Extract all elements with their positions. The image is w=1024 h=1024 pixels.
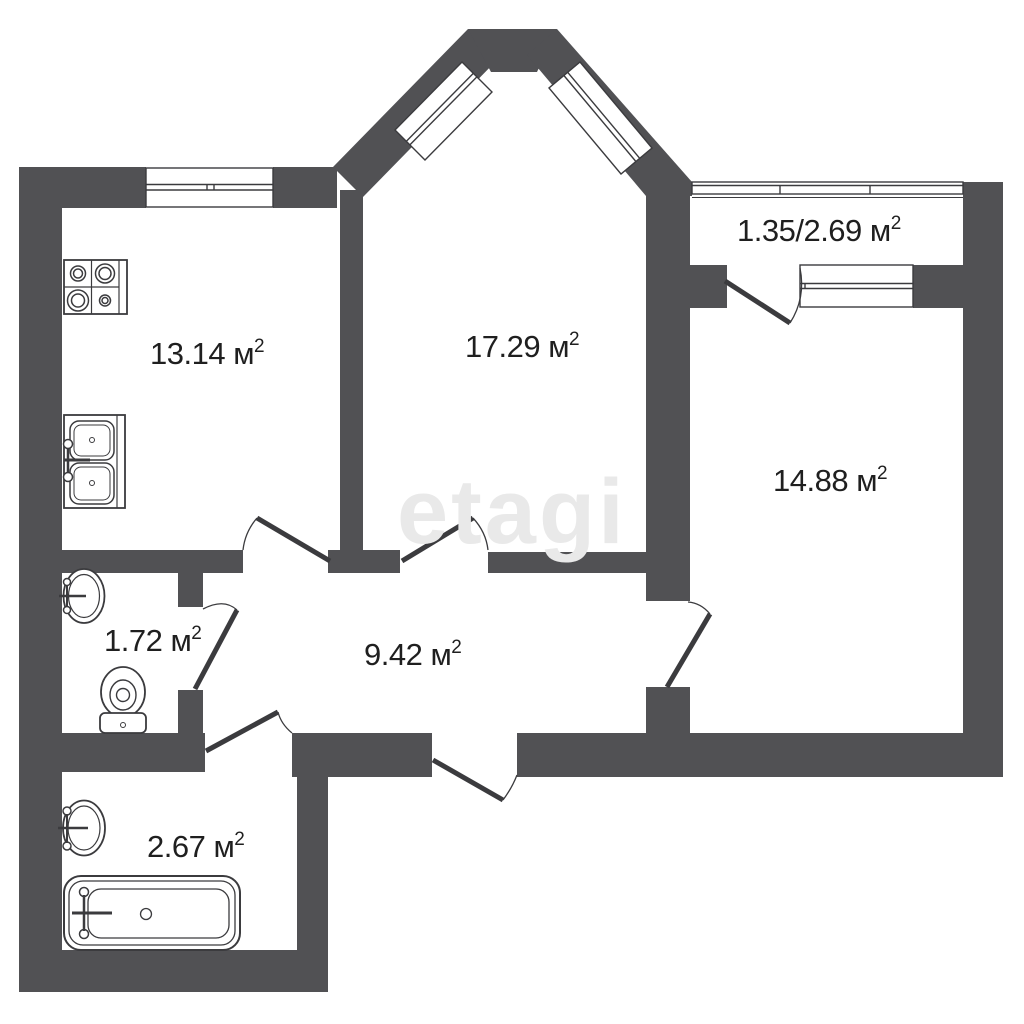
balcony-partition-window-icon xyxy=(800,265,913,307)
wall-bottom-main xyxy=(517,733,1003,777)
floor-plan-canvas: etagi 13.14 м2 17.29 м2 1.35/2.69 м2 14.… xyxy=(0,0,1024,1024)
wall-top-kitchen-left xyxy=(19,167,146,208)
label-wc-area: 1.72 м2 xyxy=(104,623,201,658)
bedroom-door xyxy=(667,602,710,687)
wall-balcony-partition-left xyxy=(690,265,727,308)
kitchen-door xyxy=(243,518,330,561)
label-bathroom-area: 2.67 м2 xyxy=(147,829,244,864)
wall-divider-foot xyxy=(328,550,400,573)
bathroom-door xyxy=(206,712,292,751)
wall-wc-right-upper xyxy=(178,571,203,607)
balcony-door xyxy=(725,268,802,323)
wall-top-kitchen-right xyxy=(273,167,337,208)
toilet-icon xyxy=(100,667,146,733)
wall-right-exterior xyxy=(963,182,1003,777)
windows xyxy=(146,62,963,307)
wall-vertical-bedroom-stub xyxy=(646,687,690,733)
label-living-room-area: 17.29 м2 xyxy=(465,329,579,364)
bathtub-icon xyxy=(64,876,240,950)
wall-kitchen-bottom xyxy=(19,550,243,573)
wc-door xyxy=(195,604,237,689)
wall-wc-right-lower xyxy=(178,690,203,733)
kitchen-window-icon xyxy=(146,168,273,207)
wall-wc-bathroom xyxy=(19,733,205,772)
wall-left-exterior xyxy=(19,167,62,992)
wall-kitchen-living-divider xyxy=(340,190,363,552)
label-balcony-area: 1.35/2.69 м2 xyxy=(737,213,901,248)
floor-plan: etagi 13.14 м2 17.29 м2 1.35/2.69 м2 14.… xyxy=(0,0,1024,1024)
kitchen-sink-icon xyxy=(64,415,126,508)
stove-icon xyxy=(64,260,127,314)
watermark-logo: etagi xyxy=(397,461,627,563)
wall-bathroom-right xyxy=(297,772,328,950)
wall-balcony-partition-right xyxy=(913,265,965,308)
balcony-glazing-icon xyxy=(692,182,963,198)
bath-basin-icon xyxy=(58,801,105,856)
wc-basin-icon xyxy=(59,569,105,623)
entrance-door xyxy=(433,760,517,800)
wall-vertical-living-bedroom xyxy=(646,182,690,601)
wall-bathroom-bottom xyxy=(19,950,328,992)
label-bedroom-area: 14.88 м2 xyxy=(773,463,887,498)
label-hallway-area: 9.42 м2 xyxy=(364,637,461,672)
label-kitchen-area: 13.14 м2 xyxy=(150,336,264,371)
wall-bottom-mid-block xyxy=(292,733,432,777)
